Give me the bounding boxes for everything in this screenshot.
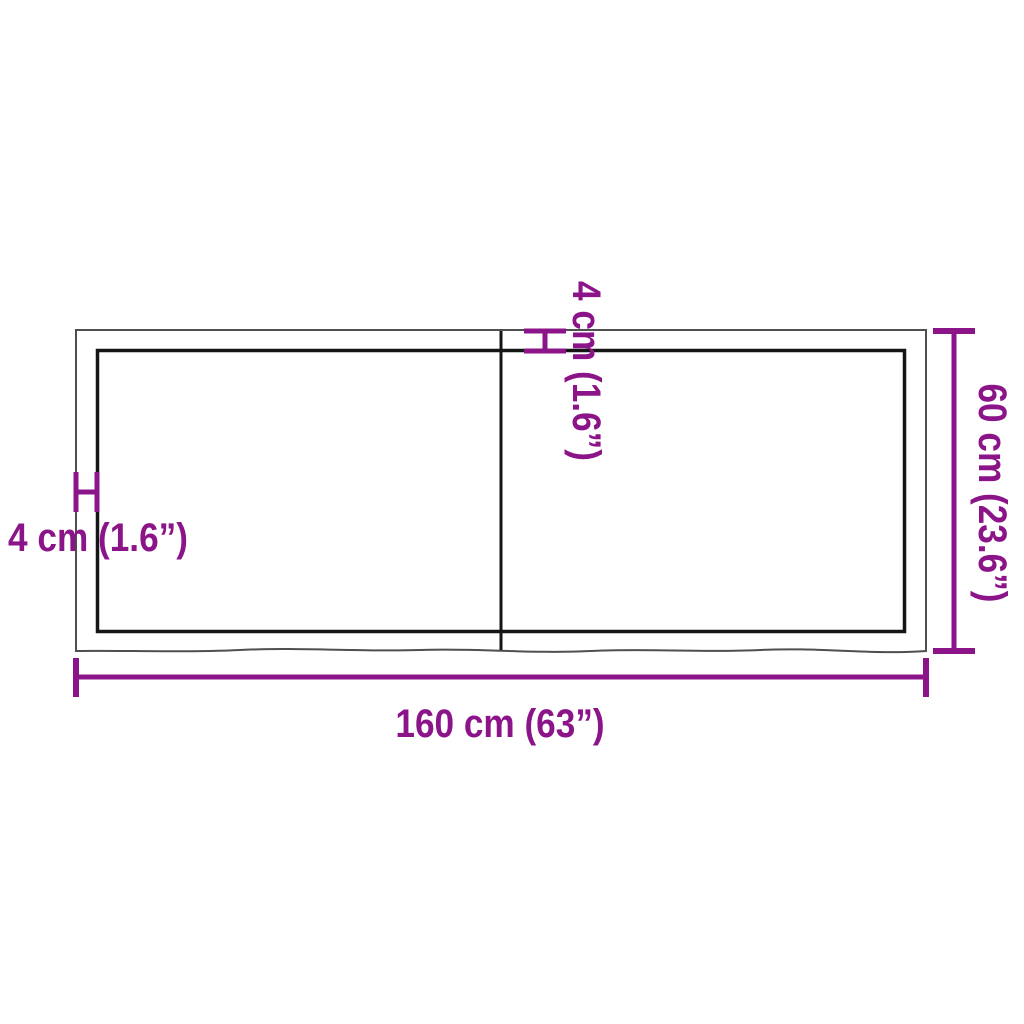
thickness-marker-left — [74, 472, 99, 512]
dimension-diagram-canvas: 160 cm (63”) 4 cm (1.6”) 4 cm (1.6”) 60 … — [0, 0, 1024, 1024]
width-dimension-line — [76, 658, 926, 697]
thickness-marker-top — [524, 329, 566, 353]
thickness-top-label: 4 cm (1.6”) — [565, 281, 610, 461]
product-dimension-diagram: 160 cm (63”) 4 cm (1.6”) 4 cm (1.6”) 60 … — [0, 0, 1024, 1024]
height-dimension-line — [933, 331, 975, 651]
thickness-left-label: 4 cm (1.6”) — [8, 515, 188, 560]
tabletop — [76, 330, 926, 652]
dimension-lines — [74, 329, 975, 697]
height-dimension-label: 60 cm (23.6”) — [971, 383, 1016, 602]
width-dimension-label: 160 cm (63”) — [395, 701, 604, 746]
